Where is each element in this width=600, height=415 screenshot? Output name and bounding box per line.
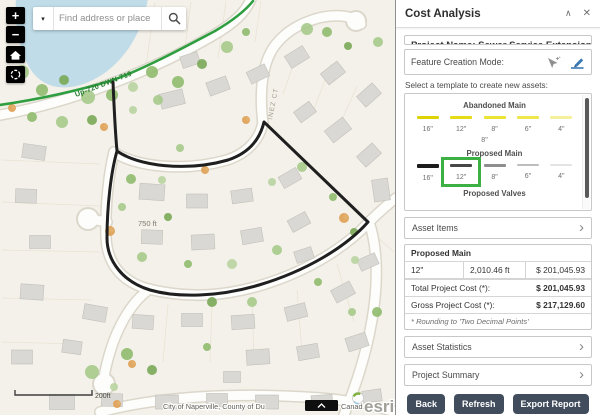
feature-creation-mode: Feature Creation Mode: <box>404 49 592 75</box>
search-input[interactable] <box>54 7 161 30</box>
accordion-label: Asset Statistics <box>412 342 472 352</box>
template-swatch-row: 16"12"8"6"4" <box>409 160 580 184</box>
swatch-label: 4" <box>558 173 564 180</box>
swatch-label: 16" <box>423 126 433 133</box>
accordion-project-summary[interactable]: Project Summary › <box>404 364 592 386</box>
accordion-label: Asset Items <box>412 223 458 233</box>
cost-table-row: 12" 2,010.46 ft $ 201,045.93 <box>405 262 591 280</box>
template-item-16in[interactable]: 16" <box>411 112 444 135</box>
asset-cost: $ 201,045.93 <box>525 262 591 278</box>
panel-body: Project Name: Sewer Service Extension Fe… <box>396 28 600 415</box>
asset-size: 12" <box>405 262 463 278</box>
template-item-12in[interactable]: 12" <box>444 160 477 184</box>
template-picker: Abandoned Main16"12"8"6"4"8"Proposed Mai… <box>404 93 592 211</box>
asset-length: 2,010.46 ft <box>463 262 525 278</box>
swatch-label: 12" <box>456 174 466 181</box>
line-swatch <box>417 116 439 119</box>
export-report-button[interactable]: Export Report <box>513 394 589 414</box>
swatch-label: 16" <box>423 175 433 182</box>
template-item-6in[interactable]: 6" <box>511 112 544 135</box>
template-group-heading: Abandoned Main <box>409 101 580 110</box>
search-icon <box>168 12 181 25</box>
swatch-label: 6" <box>525 126 531 133</box>
template-content: Abandoned Main16"12"8"6"4"8"Proposed Mai… <box>409 101 580 198</box>
line-swatch <box>517 116 539 119</box>
map-basemap <box>0 0 395 415</box>
chevron-right-icon: › <box>579 371 584 379</box>
attribution-toggle[interactable] <box>305 400 338 411</box>
scrollbar-thumb[interactable] <box>585 98 589 198</box>
search-button[interactable] <box>161 7 186 30</box>
scale-label: 200ft <box>95 393 111 400</box>
select-pointer-icon[interactable] <box>546 56 561 69</box>
distance-label: 750 ft <box>138 219 158 228</box>
line-swatch <box>484 116 506 119</box>
search-box: ▾ <box>33 7 186 30</box>
template-scrollbar <box>582 95 590 209</box>
back-button[interactable]: Back <box>407 394 445 414</box>
total-cost-row: Total Project Cost (*): $ 201,045.93 <box>405 280 591 297</box>
search-dropdown-button[interactable]: ▾ <box>33 7 54 30</box>
refresh-button[interactable]: Refresh <box>454 394 504 414</box>
locate-button[interactable] <box>6 66 25 83</box>
chevron-right-icon: › <box>579 224 584 232</box>
feature-creation-label: Feature Creation Mode: <box>411 57 504 67</box>
accordion-asset-items[interactable]: Asset Items › <box>404 217 592 239</box>
cost-table-group-header: Proposed Main <box>405 245 591 262</box>
panel-footer: Back Refresh Export Report <box>404 386 592 415</box>
template-item-4in[interactable]: 4" <box>545 112 578 135</box>
close-icon[interactable]: ✕ <box>583 9 591 19</box>
line-swatch <box>450 116 472 119</box>
cost-table: Proposed Main 12" 2,010.46 ft $ 201,045.… <box>404 244 592 330</box>
map-svg: Up-720 DWN-719 750 ft INEZ CT 200ft City… <box>0 0 395 415</box>
template-group-heading: Proposed Main <box>409 149 580 158</box>
template-item-6in[interactable]: 6" <box>511 160 544 184</box>
esri-wordmark: esri <box>364 397 394 415</box>
template-item-16in[interactable]: 16" <box>411 160 444 184</box>
rounding-note: * Rounding to 'Two Decimal Points' <box>405 314 591 329</box>
swatch-label: 4" <box>558 126 564 133</box>
map-canvas[interactable]: Up-720 DWN-719 750 ft INEZ CT 200ft City… <box>0 0 395 415</box>
line-swatch <box>450 164 472 167</box>
total-cost-value: $ 201,045.93 <box>536 283 585 293</box>
zoom-out-button[interactable]: − <box>6 26 25 43</box>
panel-title: Cost Analysis <box>405 8 554 20</box>
accordion-asset-statistics[interactable]: Asset Statistics › <box>404 336 592 358</box>
home-button[interactable] <box>6 46 25 63</box>
gross-cost-value: $ 217,129.60 <box>536 300 585 310</box>
attribution-text: City of Naperville, County of Du <box>163 402 265 411</box>
swatch-label: 12" <box>456 126 466 133</box>
template-swatch-row: 16"12"8"6"4" <box>409 112 580 135</box>
template-item-4in[interactable]: 4" <box>545 160 578 184</box>
total-cost-label: Total Project Cost (*): <box>411 283 490 293</box>
stray-size-label: 8" <box>404 137 570 144</box>
line-swatch <box>517 164 539 166</box>
template-item-8in[interactable]: 8" <box>478 112 511 135</box>
line-swatch <box>550 164 572 166</box>
swatch-label: 8" <box>491 126 497 133</box>
template-group-heading: Proposed Valves <box>409 189 580 198</box>
template-item-8in[interactable]: 8" <box>478 160 511 184</box>
template-instruction: Select a template to create new assets: <box>405 81 591 90</box>
panel-header: Cost Analysis ∧ ✕ <box>396 0 600 28</box>
line-swatch <box>484 164 506 167</box>
draw-pencil-icon[interactable] <box>569 55 585 69</box>
line-swatch <box>550 116 572 119</box>
swatch-label: 8" <box>491 174 497 181</box>
cost-analysis-panel: Cost Analysis ∧ ✕ Project Name: Sewer Se… <box>395 0 600 415</box>
gross-cost-row: Gross Project Cost (*): $ 217,129.60 <box>405 297 591 314</box>
locate-icon <box>9 68 22 81</box>
line-swatch <box>417 164 439 168</box>
template-item-12in[interactable]: 12" <box>444 112 477 135</box>
gross-cost-label: Gross Project Cost (*): <box>411 300 495 310</box>
chevron-right-icon: › <box>579 343 584 351</box>
zoom-in-button[interactable]: + <box>6 7 25 24</box>
project-name: Project Name: Sewer Service Extension <box>404 35 592 45</box>
accordion-label: Project Summary <box>412 370 479 380</box>
cost-analysis-app: Up-720 DWN-719 750 ft INEZ CT 200ft City… <box>0 0 600 415</box>
collapse-icon[interactable]: ∧ <box>565 9 572 18</box>
home-icon <box>9 49 22 61</box>
swatch-label: 6" <box>525 173 531 180</box>
